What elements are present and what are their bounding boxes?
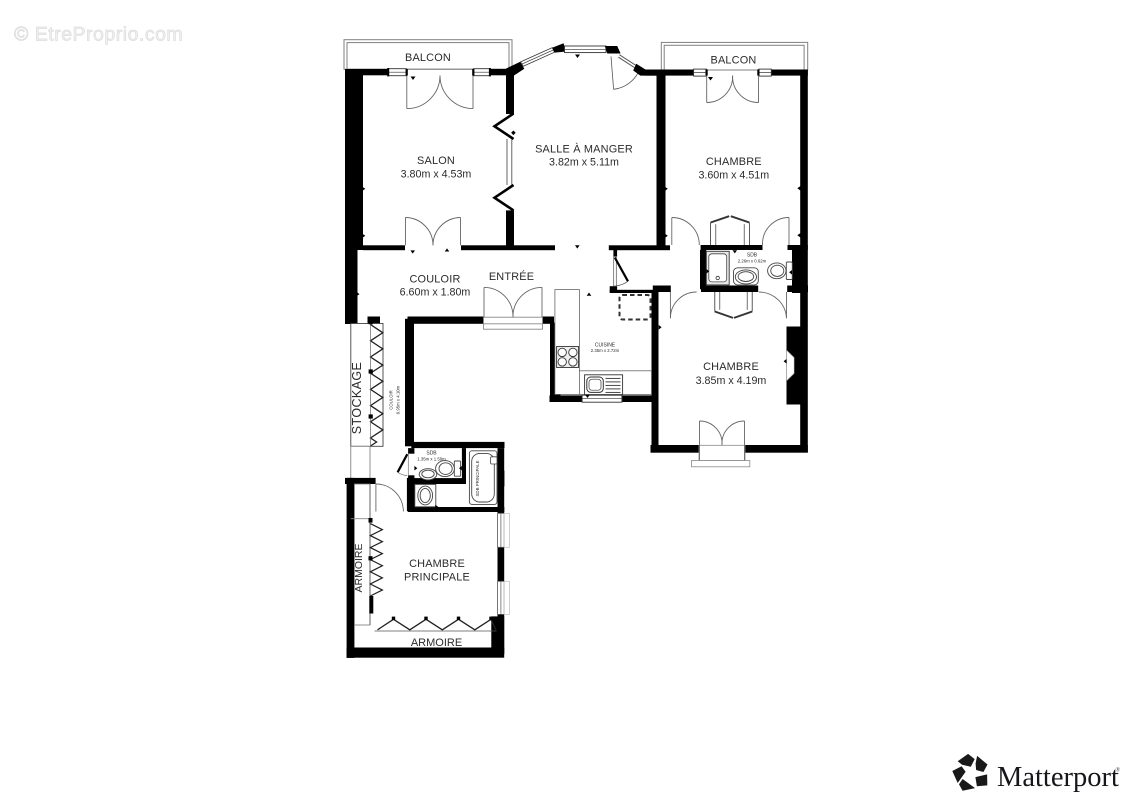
svg-text:ARMOIRE: ARMOIRE <box>353 543 365 592</box>
svg-text:SDB PRINCIPALE: SDB PRINCIPALE <box>475 460 480 496</box>
svg-text:© EtreProprio.com: © EtreProprio.com <box>14 24 183 46</box>
svg-text:COULOIR: COULOIR <box>409 273 460 285</box>
svg-text:2.35m x 2.72m: 2.35m x 2.72m <box>591 348 620 353</box>
svg-text:3.82m x 5.11m: 3.82m x 5.11m <box>549 157 619 169</box>
svg-text:SALON: SALON <box>417 155 455 167</box>
svg-text:Matterport: Matterport <box>997 762 1119 793</box>
svg-text:2.26m x 0.62m: 2.26m x 0.62m <box>738 258 767 263</box>
svg-text:3.85m x 4.19m: 3.85m x 4.19m <box>696 375 767 387</box>
svg-text:ENTRÉE: ENTRÉE <box>489 270 534 283</box>
svg-text:3.80m x 4.53m: 3.80m x 4.53m <box>401 169 472 181</box>
svg-text:COULOIR: COULOIR <box>389 390 394 410</box>
svg-text:CHAMBRE: CHAMBRE <box>703 361 759 373</box>
svg-text:0.95m x 4.10m: 0.95m x 4.10m <box>396 385 401 414</box>
svg-text:ARMOIRE: ARMOIRE <box>411 637 462 649</box>
svg-text:STOCKAGE: STOCKAGE <box>350 362 364 434</box>
svg-text:SALLE À MANGER: SALLE À MANGER <box>535 143 633 156</box>
svg-text:3.60m x 4.51m: 3.60m x 4.51m <box>698 170 769 182</box>
svg-text:CHAMBRE: CHAMBRE <box>706 156 762 168</box>
svg-text:®: ® <box>1116 767 1121 774</box>
svg-text:1.35m x 1.59m: 1.35m x 1.59m <box>417 456 446 461</box>
svg-text:PRINCIPALE: PRINCIPALE <box>404 571 470 583</box>
svg-text:BALCON: BALCON <box>711 55 757 67</box>
svg-text:CHAMBRE: CHAMBRE <box>409 558 465 570</box>
svg-text:BALCON: BALCON <box>405 52 451 64</box>
svg-text:6.60m x 1.80m: 6.60m x 1.80m <box>400 286 471 298</box>
